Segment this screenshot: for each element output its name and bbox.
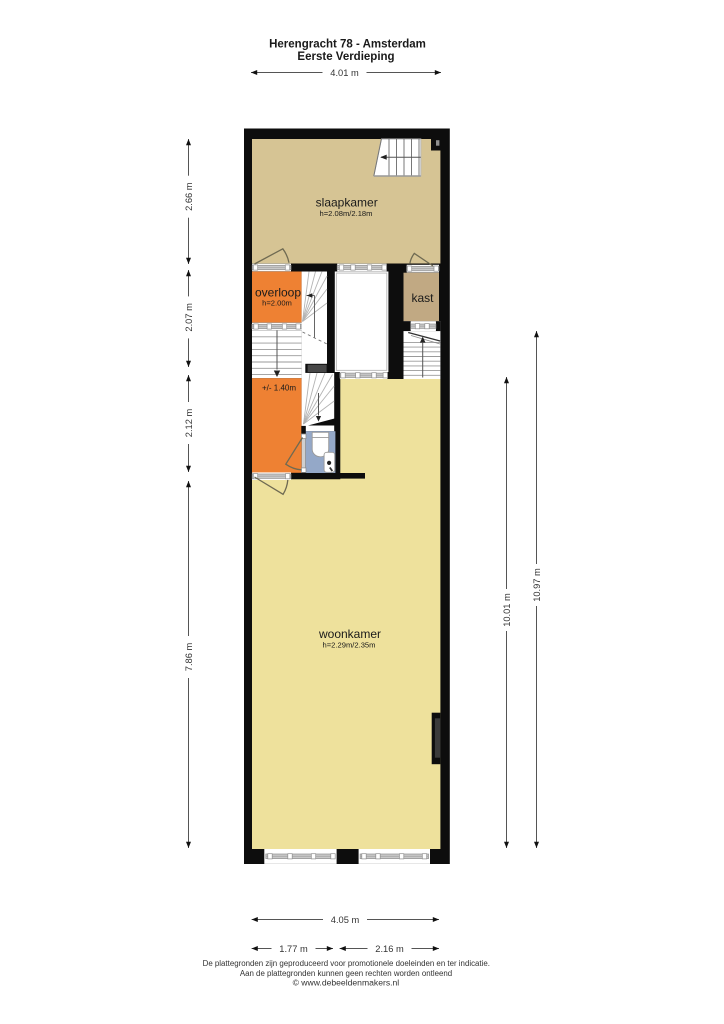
svg-text:h=2.08m/2.18m: h=2.08m/2.18m [320,209,373,218]
svg-text:1.77 m: 1.77 m [279,944,308,954]
svg-text:4.05 m: 4.05 m [331,915,360,925]
svg-text:4.01 m: 4.01 m [330,68,359,78]
svg-text:h=2.00m: h=2.00m [262,298,292,307]
svg-text:De plattegronden zijn geproduc: De plattegronden zijn geproduceerd voor … [203,959,490,968]
svg-text:kast: kast [411,291,434,305]
svg-text:Eerste Verdieping: Eerste Verdieping [297,51,394,63]
svg-text:2.66 m: 2.66 m [184,182,194,211]
svg-text:2.12 m: 2.12 m [184,409,194,438]
svg-text:10.97 m: 10.97 m [532,568,542,602]
svg-text:© www.debeeldenmakers.nl: © www.debeeldenmakers.nl [293,978,400,988]
svg-text:Herengracht 78 - Amsterdam: Herengracht 78 - Amsterdam [269,39,426,51]
svg-text:+/- 1.40m: +/- 1.40m [262,384,296,393]
svg-text:h=2.29m/2.35m: h=2.29m/2.35m [323,641,376,650]
svg-text:7.86 m: 7.86 m [184,643,194,672]
svg-text:2.16 m: 2.16 m [375,944,404,954]
svg-text:woonkamer: woonkamer [318,627,381,641]
svg-text:2.07 m: 2.07 m [184,303,194,332]
svg-text:slaapkamer: slaapkamer [316,195,378,209]
svg-text:10.01 m: 10.01 m [502,593,512,627]
